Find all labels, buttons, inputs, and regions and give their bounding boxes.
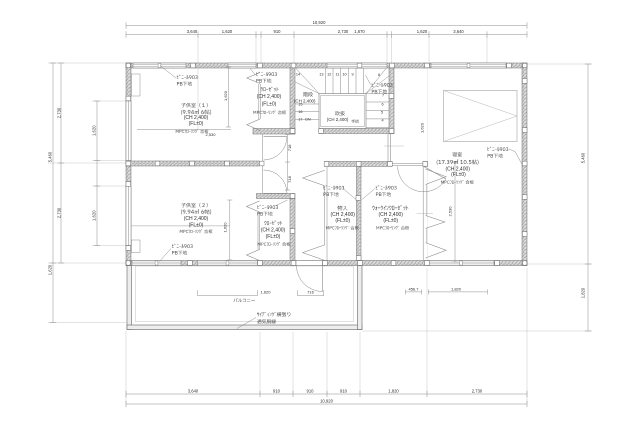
- svg-text:2,730: 2,730: [57, 107, 62, 118]
- svg-text:14: 14: [296, 72, 300, 76]
- svg-text:8: 8: [378, 73, 380, 77]
- svg-text:5: 5: [381, 111, 383, 115]
- svg-text:10,920: 10,920: [320, 399, 333, 404]
- svg-text:12: 12: [327, 72, 331, 76]
- svg-text:(FL±0): (FL±0): [335, 218, 350, 224]
- svg-text:11: 11: [336, 72, 340, 76]
- svg-text:(FL±0): (FL±0): [189, 121, 204, 127]
- svg-text:13: 13: [319, 72, 323, 76]
- svg-text:2,730: 2,730: [57, 207, 62, 218]
- svg-text:(CH 2,400): (CH 2,400): [294, 99, 316, 104]
- svg-text:2,730: 2,730: [338, 29, 349, 34]
- svg-text:5,460: 5,460: [48, 151, 53, 162]
- svg-text:7: 7: [382, 94, 384, 98]
- svg-text:(FL±0): (FL±0): [266, 234, 281, 240]
- svg-text:1,620: 1,620: [417, 29, 428, 34]
- svg-text:(CH 2,400): (CH 2,400): [327, 117, 349, 122]
- svg-text:1,820: 1,820: [451, 286, 462, 291]
- svg-text:(CH 2,400): (CH 2,400): [184, 216, 209, 222]
- svg-text:(CH 2,400): (CH 2,400): [261, 228, 286, 234]
- svg-text:9: 9: [352, 72, 354, 76]
- svg-text:456.7: 456.7: [408, 286, 419, 291]
- svg-text:1,620: 1,620: [260, 289, 271, 294]
- svg-text:(FL±0): (FL±0): [189, 222, 204, 228]
- svg-text:1,670: 1,670: [354, 29, 365, 34]
- svg-text:910: 910: [307, 389, 315, 394]
- svg-text:3,640: 3,640: [453, 29, 464, 34]
- svg-text:1,620: 1,620: [222, 222, 227, 233]
- svg-text:1,820: 1,820: [388, 389, 399, 394]
- svg-text:6: 6: [381, 103, 383, 107]
- svg-text:910: 910: [273, 389, 281, 394]
- svg-text:2,530: 2,530: [447, 206, 452, 217]
- svg-text:5,460: 5,460: [581, 152, 586, 163]
- svg-text:910: 910: [340, 389, 348, 394]
- svg-text:(FL±0): (FL±0): [451, 172, 466, 178]
- svg-text:1,620: 1,620: [222, 29, 233, 34]
- svg-text:1,620: 1,620: [92, 210, 97, 221]
- svg-text:3,640: 3,640: [187, 29, 198, 34]
- svg-text:718: 718: [287, 144, 292, 151]
- svg-text:1,620: 1,620: [419, 122, 424, 133]
- svg-text:(CH 2,400): (CH 2,400): [257, 94, 282, 100]
- svg-text:2,730: 2,730: [472, 389, 483, 394]
- svg-text:(FL±0): (FL±0): [262, 102, 277, 108]
- svg-text:1,620: 1,620: [48, 264, 53, 275]
- svg-text:16: 16: [298, 110, 302, 114]
- svg-text:1,620: 1,620: [92, 125, 97, 136]
- svg-text:4: 4: [381, 119, 383, 123]
- svg-text:1,820: 1,820: [581, 287, 586, 298]
- svg-text:910: 910: [274, 29, 282, 34]
- svg-text:3,640: 3,640: [188, 389, 199, 394]
- svg-text:DN: DN: [305, 118, 311, 122]
- svg-text:17: 17: [298, 118, 302, 122]
- svg-text:718: 718: [287, 175, 292, 182]
- svg-text:10: 10: [342, 72, 346, 76]
- svg-text:10,920: 10,920: [313, 20, 326, 25]
- svg-text:(FL±0): (FL±0): [383, 218, 398, 224]
- svg-text:716: 716: [307, 290, 314, 295]
- svg-text:1,620: 1,620: [223, 90, 228, 101]
